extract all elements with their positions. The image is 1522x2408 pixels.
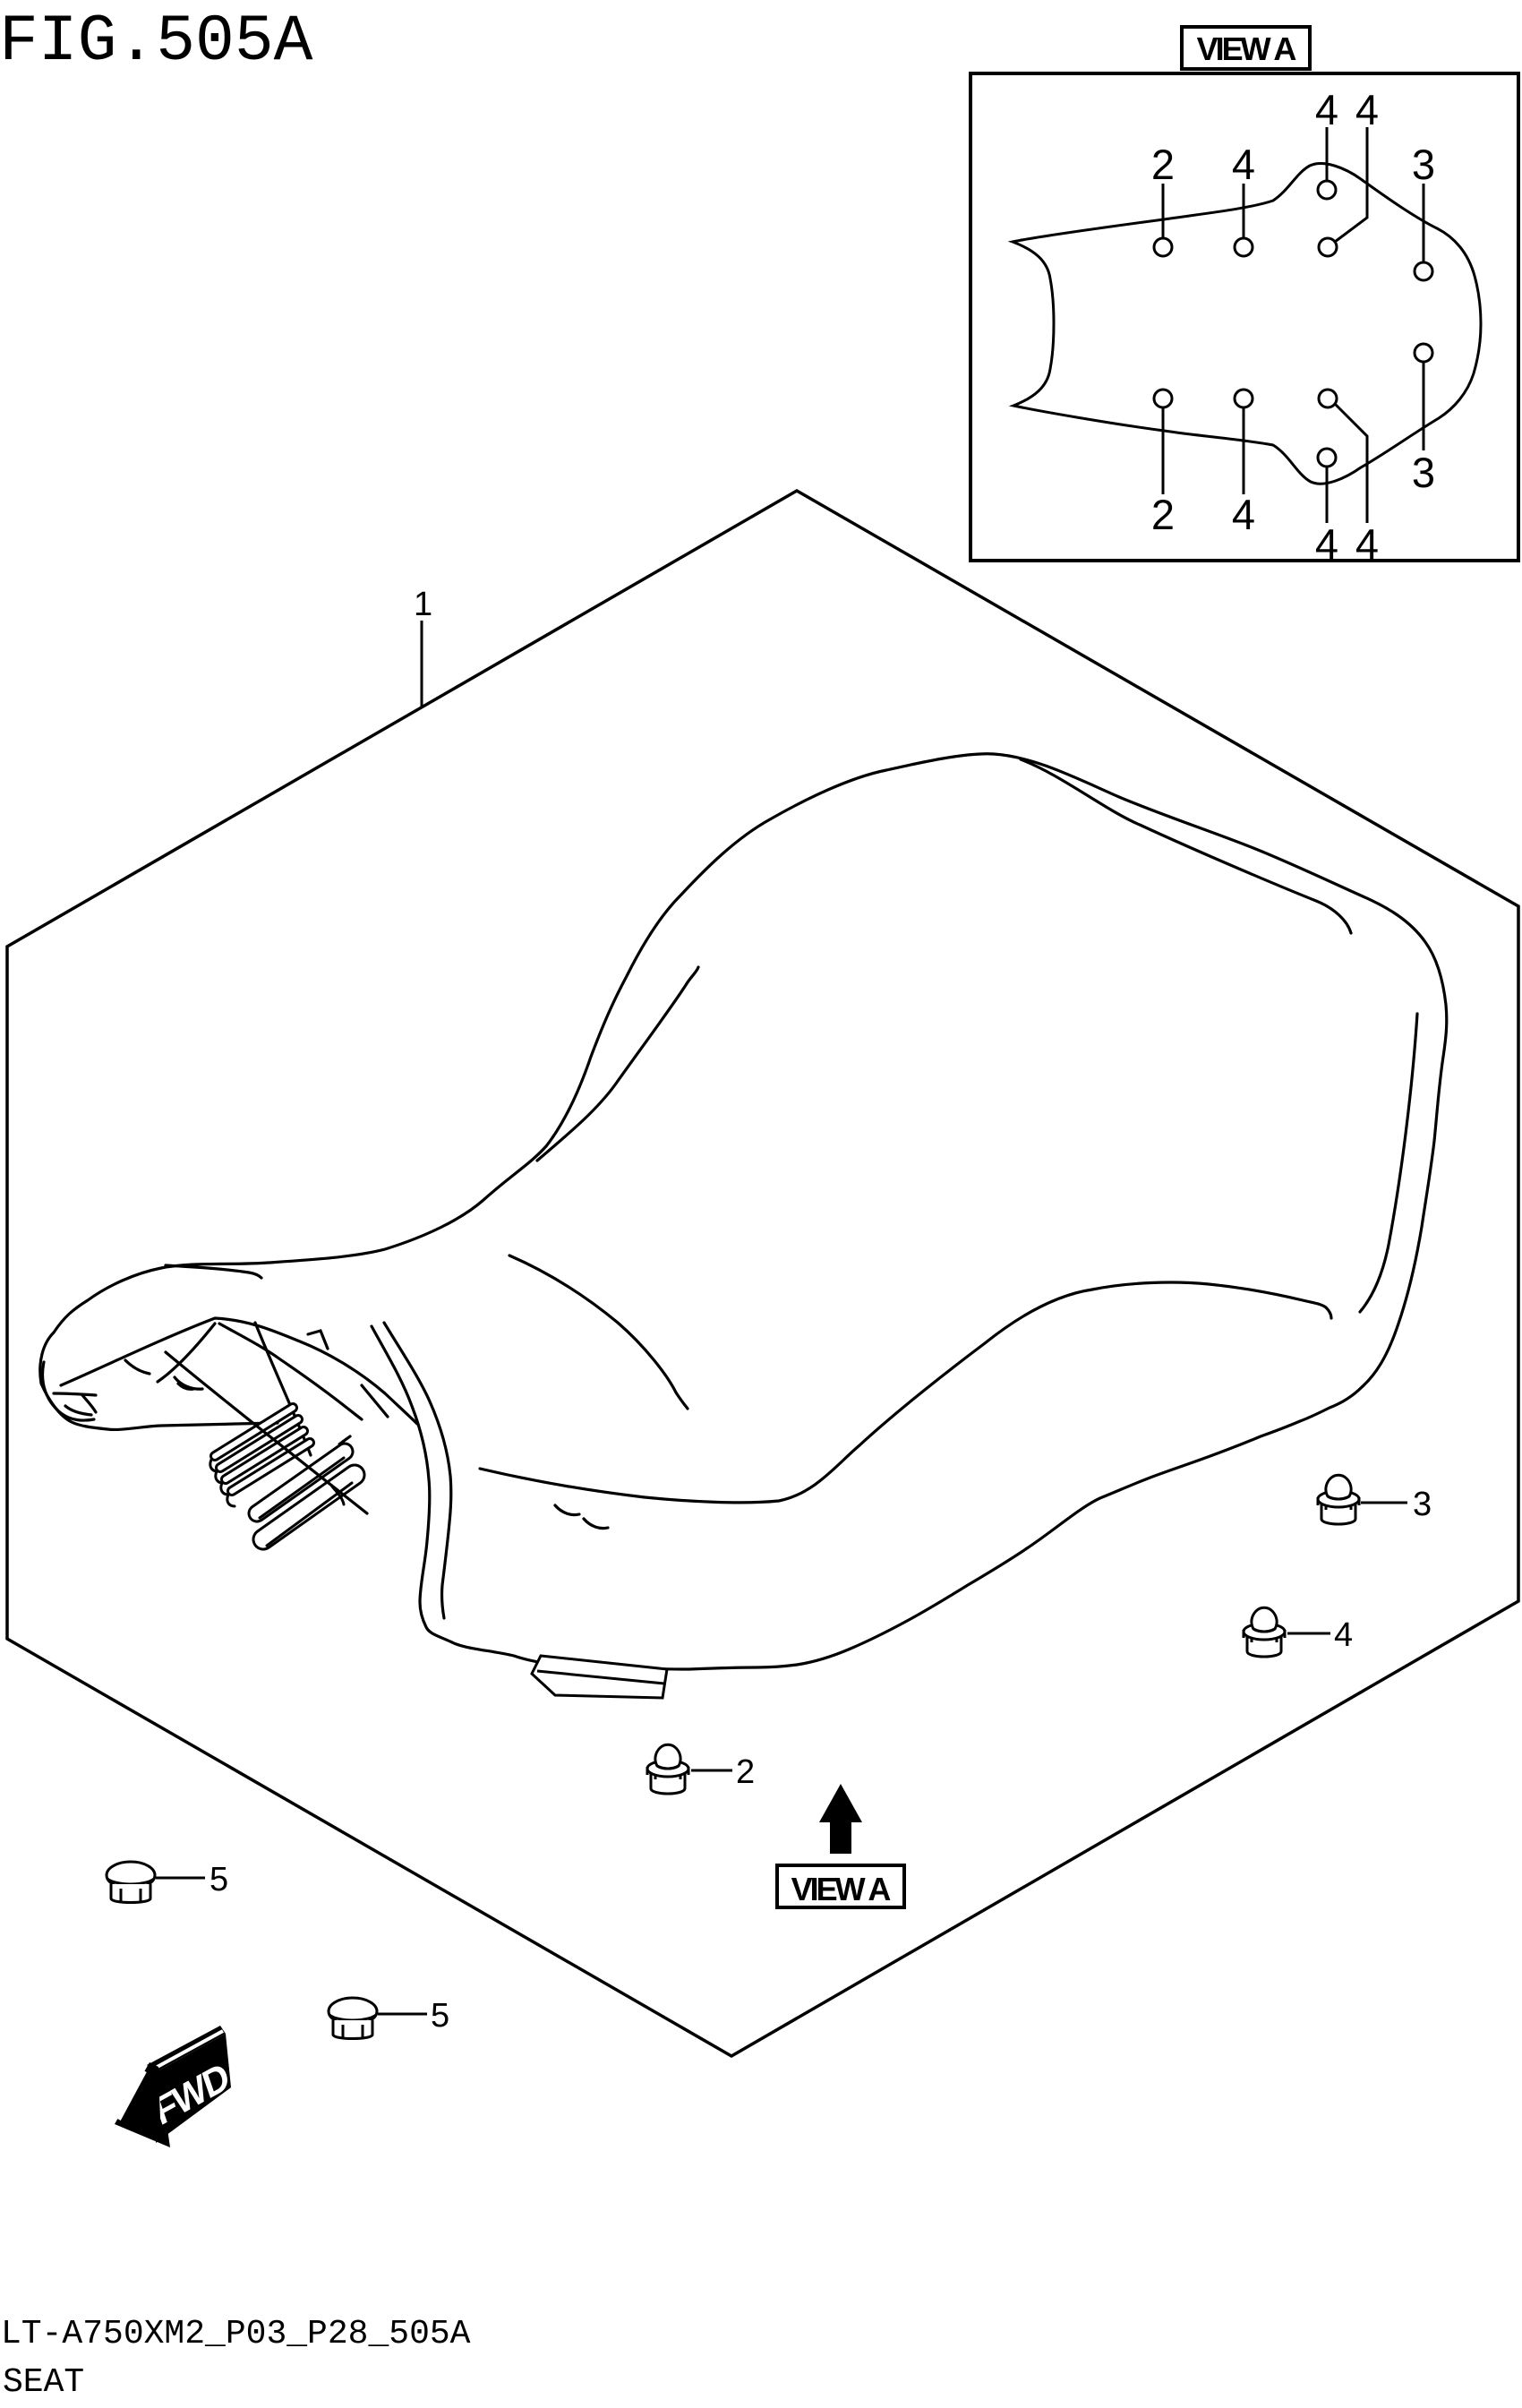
svg-text:VIEW A: VIEW A xyxy=(791,1871,892,1907)
svg-text:4: 4 xyxy=(1334,1616,1353,1654)
svg-text:4: 4 xyxy=(1232,491,1255,538)
svg-text:4: 4 xyxy=(1315,520,1338,568)
svg-text:3: 3 xyxy=(1412,449,1435,496)
svg-text:3: 3 xyxy=(1413,1486,1432,1523)
svg-text:2: 2 xyxy=(736,1753,755,1791)
svg-text:5: 5 xyxy=(209,1861,228,1898)
svg-text:FIG.505A: FIG.505A xyxy=(0,4,313,79)
svg-text:2: 2 xyxy=(1151,141,1175,188)
svg-text:LT-A750XM2_P03_P28_505A: LT-A750XM2_P03_P28_505A xyxy=(1,2315,471,2353)
svg-text:1: 1 xyxy=(414,586,432,623)
svg-text:4: 4 xyxy=(1355,86,1379,133)
svg-text:4: 4 xyxy=(1315,86,1338,133)
svg-text:4: 4 xyxy=(1232,141,1255,188)
svg-text:5: 5 xyxy=(431,1997,449,2035)
svg-text:3: 3 xyxy=(1412,141,1435,188)
svg-text:4: 4 xyxy=(1355,520,1379,568)
svg-text:2: 2 xyxy=(1151,491,1175,538)
svg-text:VIEW A: VIEW A xyxy=(1197,30,1297,67)
svg-text:SEAT: SEAT xyxy=(3,2363,84,2402)
